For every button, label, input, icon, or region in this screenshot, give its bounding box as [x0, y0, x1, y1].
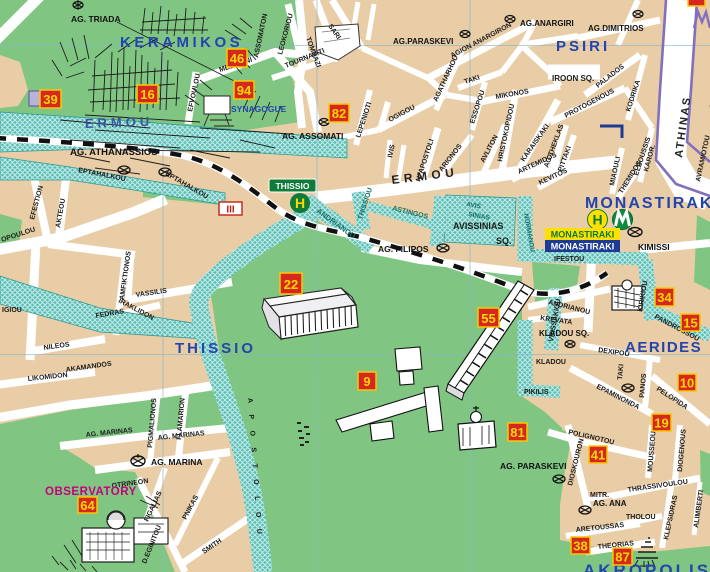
- svg-text:MITR.: MITR.: [590, 492, 609, 499]
- svg-text:H: H: [592, 212, 602, 228]
- svg-text:TAKI: TAKI: [617, 364, 625, 380]
- svg-text:64: 64: [80, 498, 95, 513]
- svg-text:AG. ATHANASSIOS: AG. ATHANASSIOS: [70, 147, 158, 158]
- svg-text:H: H: [295, 195, 305, 211]
- svg-text:AG.ANARGIRI: AG.ANARGIRI: [520, 19, 574, 28]
- svg-text:AG.PARASKEVI: AG.PARASKEVI: [393, 37, 453, 46]
- svg-text:AKROPOLIS: AKROPOLIS: [583, 561, 710, 572]
- svg-text:46: 46: [230, 51, 244, 66]
- svg-text:KIMISSI: KIMISSI: [638, 242, 670, 252]
- svg-text:PSIRI: PSIRI: [556, 38, 610, 55]
- svg-text:22: 22: [284, 277, 298, 292]
- svg-text:AVISSINIAS: AVISSINIAS: [453, 221, 503, 231]
- svg-text:15: 15: [683, 316, 697, 331]
- svg-text:81: 81: [510, 425, 524, 440]
- svg-text:SYNAGOGUE: SYNAGOGUE: [231, 104, 287, 114]
- svg-text:KLADOU: KLADOU: [536, 359, 566, 366]
- svg-text:AG. ASSOMATI: AG. ASSOMATI: [282, 131, 343, 141]
- svg-text:MONASTIRAKI: MONASTIRAKI: [551, 242, 615, 252]
- svg-text:AG. MARINA: AG. MARINA: [151, 457, 202, 467]
- svg-text:34: 34: [657, 290, 672, 305]
- svg-text:AG. PARASKEVI: AG. PARASKEVI: [500, 461, 566, 471]
- svg-text:55: 55: [481, 311, 495, 326]
- svg-text:9: 9: [363, 374, 370, 389]
- svg-text:OBSERVATORY: OBSERVATORY: [45, 486, 137, 498]
- svg-text:SQ.: SQ.: [496, 236, 512, 246]
- svg-text:THISSIO: THISSIO: [175, 340, 256, 357]
- svg-text:10: 10: [680, 376, 694, 391]
- svg-text:AERIDES: AERIDES: [625, 339, 702, 356]
- svg-text:AG. TRIADA: AG. TRIADA: [71, 14, 121, 24]
- svg-text:87: 87: [615, 550, 629, 565]
- svg-text:THISSIO: THISSIO: [275, 181, 309, 191]
- svg-text:III: III: [226, 205, 235, 216]
- svg-text:AG.DIMITRIOS: AG.DIMITRIOS: [588, 24, 644, 33]
- svg-text:KLADOU SQ.: KLADOU SQ.: [539, 329, 589, 338]
- svg-text:19: 19: [654, 416, 668, 431]
- svg-text:MONASTIRAKI: MONASTIRAKI: [551, 230, 615, 240]
- svg-text:PIKILIS: PIKILIS: [524, 389, 549, 396]
- svg-text:ERMOU: ERMOU: [85, 114, 154, 131]
- svg-text:AG. FILIPOS: AG. FILIPOS: [378, 244, 429, 254]
- svg-text:94: 94: [237, 83, 252, 98]
- svg-text:IGIOU: IGIOU: [2, 307, 22, 314]
- svg-text:IFESTOU: IFESTOU: [554, 256, 584, 263]
- svg-text:39: 39: [43, 92, 57, 107]
- svg-text:THOLOU: THOLOU: [626, 514, 656, 521]
- svg-text:41: 41: [591, 448, 605, 463]
- svg-text:KERAMIKOS: KERAMIKOS: [120, 34, 243, 51]
- svg-text:IROON SQ.: IROON SQ.: [552, 74, 594, 83]
- svg-text:16: 16: [140, 87, 154, 102]
- svg-text:MONASTIRAKI: MONASTIRAKI: [585, 195, 710, 212]
- svg-text:AG. ANA: AG. ANA: [593, 499, 627, 508]
- svg-text:38: 38: [573, 539, 587, 554]
- svg-text:82: 82: [332, 106, 346, 121]
